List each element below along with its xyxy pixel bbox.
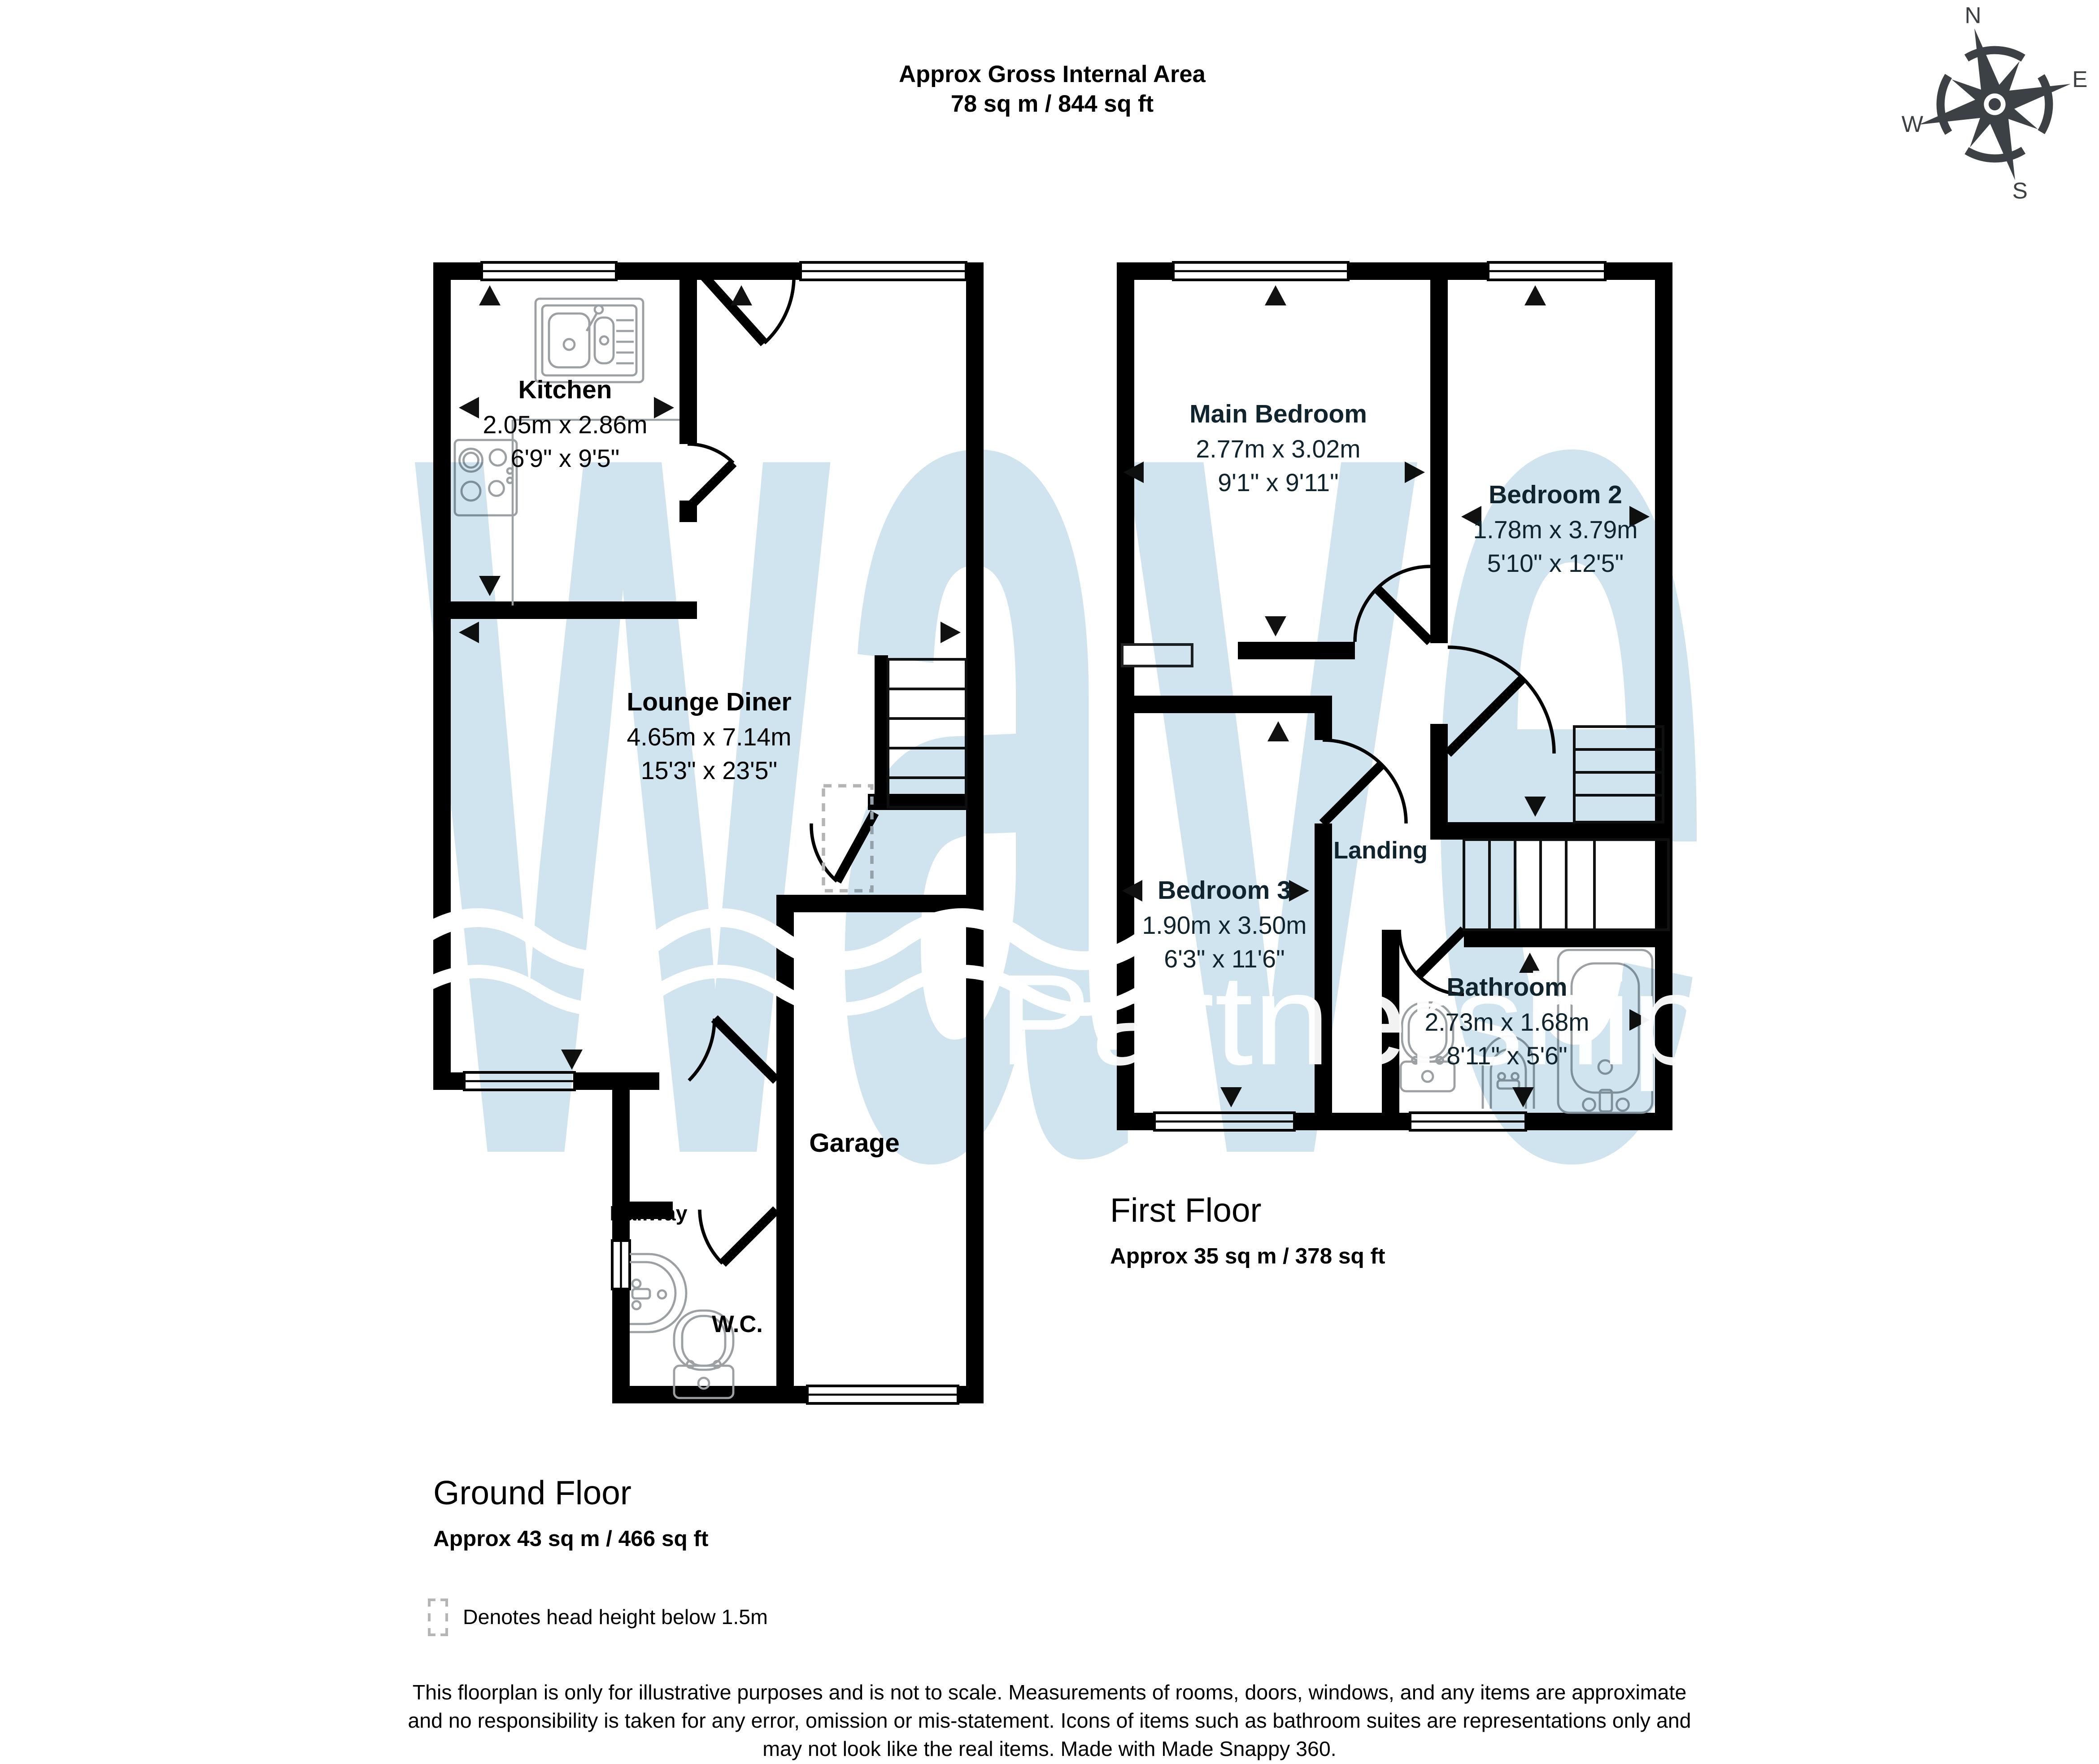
compass-rose-icon: N E S W	[1897, 7, 2092, 202]
dimension-arrow-icon	[479, 285, 501, 305]
window-icon	[1410, 1113, 1526, 1130]
window-icon	[1154, 1113, 1294, 1130]
ground-floor-title: Ground Floor	[433, 1475, 631, 1514]
kitchen-sink-icon	[536, 299, 643, 382]
svg-text:S: S	[2012, 178, 2028, 202]
door-arc-icon	[700, 1210, 776, 1263]
window-icon	[1488, 262, 1605, 280]
dimension-arrow-icon	[1267, 721, 1289, 741]
dimension-arrow-icon	[1524, 797, 1546, 817]
room-label-kitchen: Kitchen 2.05m x 2.86m 6'9" x 9'5"	[483, 374, 647, 475]
dimension-arrow-icon	[1405, 462, 1425, 483]
dimension-arrow-icon	[459, 622, 479, 643]
disclaimer-line-3: may not look like the real items. Made w…	[0, 1736, 2099, 1764]
window-icon	[464, 1072, 575, 1090]
door-arc-icon	[1323, 740, 1406, 823]
disclaimer-line-1: This floorplan is only for illustrative …	[0, 1679, 2099, 1707]
dimension-arrow-icon	[654, 397, 674, 418]
disclaimer-line-2: and no responsibility is taken for any e…	[0, 1707, 2099, 1736]
room-label-landing: Landing	[1333, 834, 1428, 868]
door-arc-icon	[1355, 566, 1430, 642]
room-label-hallway: Hallway	[610, 1198, 687, 1231]
dimension-arrow-icon	[1265, 285, 1286, 305]
disclaimer: This floorplan is only for illustrative …	[0, 1679, 2099, 1764]
head-height-legend-box	[428, 1598, 448, 1636]
door-arc-icon	[811, 813, 875, 881]
header: Approx Gross Internal Area 78 sq m / 844…	[0, 59, 2099, 118]
dimension-arrow-icon	[1524, 285, 1546, 305]
window-icon	[482, 262, 616, 280]
window-icon	[801, 262, 966, 280]
dimension-arrow-icon	[731, 285, 752, 305]
first-floor-title: First Floor	[1110, 1192, 1262, 1231]
wardrobe-outline	[1122, 645, 1192, 666]
dimension-arrow-icon	[561, 1050, 583, 1070]
room-label-wc: W.C.	[712, 1308, 763, 1342]
room-label-garage: Garage	[809, 1128, 900, 1161]
dimension-arrow-icon	[941, 622, 961, 643]
garage-door-icon	[807, 1386, 958, 1403]
dimension-arrow-icon	[479, 576, 501, 596]
svg-text:E: E	[2072, 66, 2087, 92]
door-arc-icon	[689, 1019, 776, 1080]
room-label-bathroom: Bathroom 2.73m x 1.68m 8'11" x 5'6"	[1424, 971, 1589, 1072]
window-icon	[1173, 262, 1348, 280]
basin-icon	[630, 1254, 686, 1332]
room-label-main-bedroom: Main Bedroom 2.77m x 3.02m 9'1" x 9'11"	[1189, 398, 1367, 499]
window-icon	[612, 1241, 630, 1289]
dimension-arrow-icon	[1519, 953, 1541, 973]
svg-text:N: N	[1964, 7, 1981, 28]
room-label-bedroom-3: Bedroom 3 1.90m x 3.50m 6'3" x 11'6"	[1142, 875, 1306, 976]
stairs-icon	[888, 659, 966, 807]
room-label-bedroom-2: Bedroom 2 1.78m x 3.79m 5'10" x 12'5"	[1473, 479, 1637, 580]
floorplan-page: wave Partnership Approx Gross Internal A…	[0, 0, 2099, 1760]
ground-floor-area: Approx 43 sq m / 466 sq ft	[433, 1527, 708, 1553]
first-floor-area: Approx 35 sq m / 378 sq ft	[1110, 1245, 1385, 1270]
dimension-arrow-icon	[459, 397, 479, 418]
dimension-arrow-icon	[1512, 1087, 1534, 1107]
dimension-arrow-icon	[1265, 616, 1286, 636]
room-label-lounge-diner: Lounge Diner 4.65m x 7.14m 15'3" x 23'5"	[627, 686, 791, 787]
floorplan-drawing	[0, 0, 2099, 1761]
header-title: Approx Gross Internal Area	[0, 59, 2099, 89]
door-arc-icon	[688, 444, 733, 509]
header-area: 78 sq m / 844 sq ft	[0, 89, 2099, 118]
door-arc-icon	[1448, 647, 1554, 754]
head-height-legend-text: Denotes head height below 1.5m	[463, 1607, 768, 1631]
door-arc-icon	[704, 276, 794, 343]
svg-text:W: W	[1902, 111, 1924, 137]
dimension-arrow-icon	[1220, 1087, 1242, 1107]
